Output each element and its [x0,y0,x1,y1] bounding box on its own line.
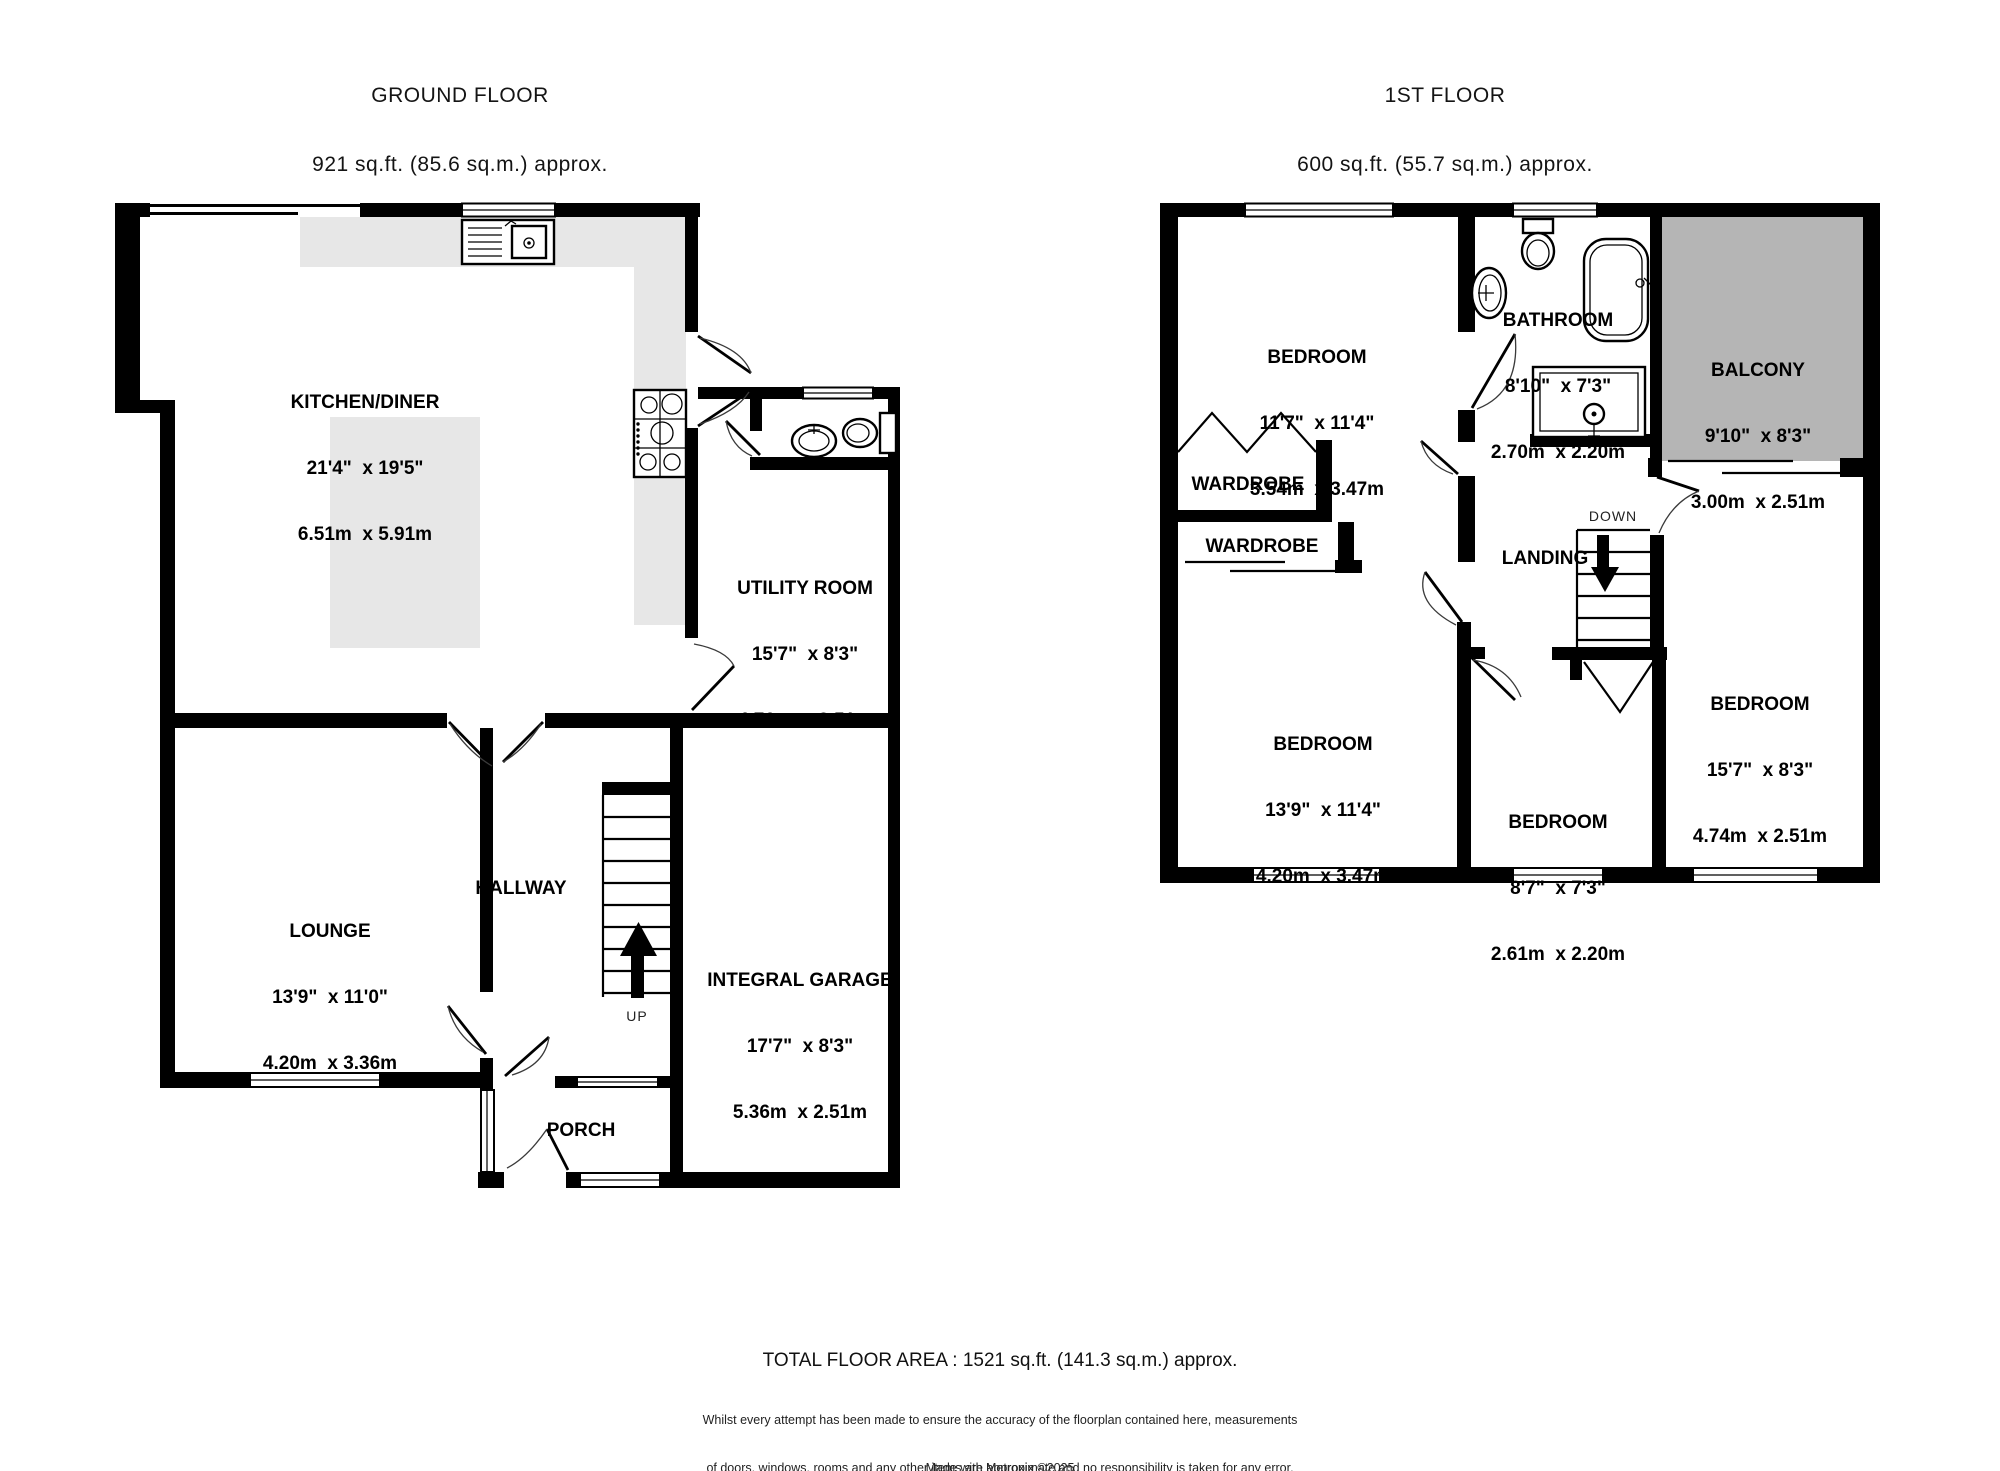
room-label-bedroom3: BEDROOM 8'7" x 7'3" 2.61m x 2.20m [1491,768,1625,1010]
room-label-hallway: HALLWAY [475,878,566,900]
room-label-bedroom1: BEDROOM 11'7" x 11'4" 3.54m x 3.47m [1250,303,1384,545]
room-name: LOUNGE [263,921,397,943]
room-dim-imperial: 8'7" x 7'3" [1491,878,1625,900]
room-label-porch: PORCH [547,1120,616,1142]
room-name: BALCONY [1691,360,1825,382]
room-dim-imperial: 9'10" x 8'3" [1691,426,1825,448]
floor-name: 1ST FLOOR [1297,84,1593,107]
toilet-icon [843,413,896,453]
room-name: KITCHEN/DINER [291,392,440,414]
room-label-utility: UTILITY ROOM 15'7" x 8'3" 4.76m x 2.51m [737,534,873,776]
room-dim-imperial: 15'7" x 8'3" [737,644,873,666]
room-label-wardrobe1: WARDROBE [1192,474,1305,496]
room-name: BATHROOM [1491,310,1625,332]
room-label-bedroom4: BEDROOM 15'7" x 8'3" 4.74m x 2.51m [1693,650,1827,892]
room-label-kitchen: KITCHEN/DINER 21'4" x 19'5" 6.51m x 5.91… [291,348,440,590]
room-dim-imperial: 17'7" x 8'3" [707,1036,892,1058]
room-name: BEDROOM [1491,812,1625,834]
room-name: BEDROOM [1250,347,1384,369]
room-dim-metric: 5.36m x 2.51m [707,1102,892,1124]
toilet-icon [1522,219,1554,269]
room-label-landing: LANDING [1502,548,1589,570]
disclaimer: Whilst every attempt has been made to en… [699,1380,1301,1471]
hob-icon [634,390,686,477]
room-label-lounge: LOUNGE 13'9" x 11'0" 4.20m x 3.36m [263,877,397,1119]
room-dim-metric: 2.70m x 2.20m [1491,442,1625,464]
disclaimer-line: Whilst every attempt has been made to en… [699,1412,1301,1428]
room-dim-imperial: 15'7" x 8'3" [1693,760,1827,782]
room-dim-imperial: 8'10" x 7'3" [1491,376,1625,398]
stairs-up-label: UP [626,1008,647,1024]
cloakroom-sink-icon [792,425,836,457]
total-floor-area: TOTAL FLOOR AREA : 1521 sq.ft. (141.3 sq… [763,1350,1238,1372]
room-dim-metric: 2.61m x 2.20m [1491,944,1625,966]
room-label-garage: INTEGRAL GARAGE 17'7" x 8'3" 5.36m x 2.5… [707,926,892,1168]
floor-area: 921 sq.ft. (85.6 sq.m.) approx. [312,153,608,176]
room-name: INTEGRAL GARAGE [707,970,892,992]
room-label-bathroom: BATHROOM 8'10" x 7'3" 2.70m x 2.20m [1491,266,1625,508]
room-label-bedroom2: BEDROOM 13'9" x 11'4" 4.20m x 3.47m [1256,690,1390,932]
floorplan-page: GROUND FLOOR 921 sq.ft. (85.6 sq.m.) app… [0,0,2000,1471]
room-dim-imperial: 13'9" x 11'0" [263,987,397,1009]
stairs-down-label: DOWN [1589,508,1637,524]
room-dim-metric: 4.20m x 3.36m [263,1053,397,1075]
floor-name: GROUND FLOOR [312,84,608,107]
first-floor-title: 1ST FLOOR 600 sq.ft. (55.7 sq.m.) approx… [1297,38,1593,222]
room-label-balcony: BALCONY 9'10" x 8'3" 3.00m x 2.51m [1691,316,1825,558]
stairs-up-icon [603,795,670,998]
metropix-credit: Made with Metropix ©2025 [926,1461,1075,1471]
ground-floor-title: GROUND FLOOR 921 sq.ft. (85.6 sq.m.) app… [312,38,608,222]
room-name: UTILITY ROOM [737,578,873,600]
room-dim-imperial: 11'7" x 11'4" [1250,413,1384,435]
floor-area: 600 sq.ft. (55.7 sq.m.) approx. [1297,153,1593,176]
room-dim-imperial: 13'9" x 11'4" [1256,800,1390,822]
room-dim-metric: 4.76m x 2.51m [737,710,873,732]
room-dim-imperial: 21'4" x 19'5" [291,458,440,480]
room-dim-metric: 3.00m x 2.51m [1691,492,1825,514]
room-name: BEDROOM [1693,694,1827,716]
room-label-wardrobe2: WARDROBE [1206,536,1319,558]
room-name: BEDROOM [1256,734,1390,756]
room-dim-metric: 4.20m x 3.47m [1256,866,1390,888]
room-dim-metric: 4.74m x 2.51m [1693,826,1827,848]
kitchen-sink-icon [462,220,554,264]
room-dim-metric: 6.51m x 5.91m [291,524,440,546]
